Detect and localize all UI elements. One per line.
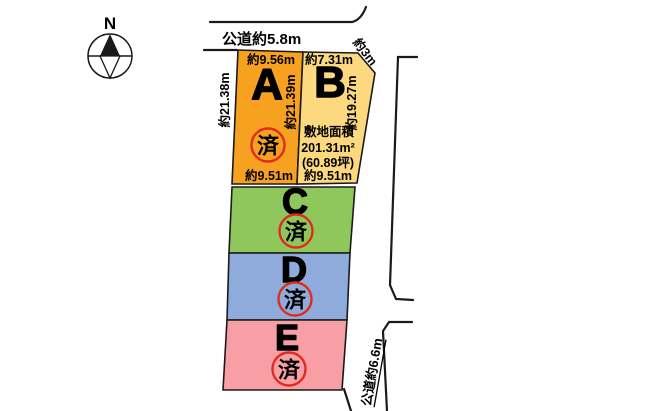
compass-needle-south-icon [100, 56, 120, 78]
plot-b-dim-bottom: 約9.51m [304, 168, 352, 183]
road-line-top [210, 7, 366, 22]
stamp-text: 済 [285, 220, 308, 245]
plot-c: C 済 [229, 181, 355, 253]
compass-n-label: N [104, 14, 116, 33]
stamp-text: 済 [284, 288, 307, 313]
site-area-tsubo: (60.89坪) [302, 156, 354, 170]
plot-b-dim-right: 約19.27m [344, 76, 359, 131]
plot-d: D 済 [227, 249, 350, 320]
site-area-title: 敷地面積 [304, 124, 355, 139]
plot-e: E 済 [223, 317, 347, 390]
land-plot-map: N 公道約5.8m 公道約6.6m 約3m 約9.56m A 約21.38m 約… [0, 0, 665, 411]
boundary-line-right-lower [383, 322, 412, 411]
compass-needle-north-icon [100, 34, 120, 56]
plot-a-dim-left: 約21.38m [217, 73, 232, 128]
boundary-line-right-upper [390, 57, 417, 300]
compass: N [88, 14, 132, 78]
boundary-line-plot-e-extension [344, 389, 351, 411]
plot-b-letter: B [314, 58, 346, 107]
plot-b: 約7.31m B 約19.27m 敷地面積 201.31m² (60.89坪) … [297, 52, 375, 184]
plot-a-dim-right: 約21.39m [283, 75, 298, 130]
road-label-top: 公道約5.8m [222, 30, 301, 48]
stamp-text: 済 [278, 358, 301, 383]
road-label-southeast: 公道約6.6m [359, 337, 386, 407]
plot-a: 約9.56m A 約21.38m 約21.39m 済 約9.51m [217, 50, 303, 184]
site-area-m2: 201.31m² [301, 141, 355, 155]
stamp-text: 済 [257, 134, 280, 159]
plot-a-letter: A [251, 60, 283, 109]
